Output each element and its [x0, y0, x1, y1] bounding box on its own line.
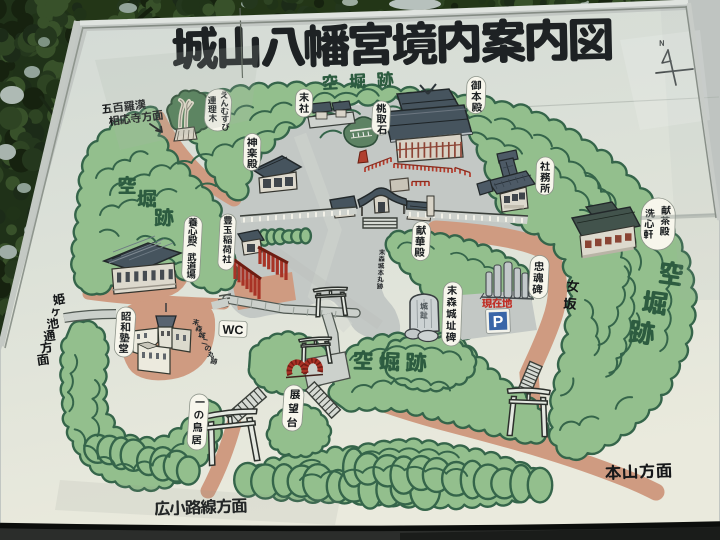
svg-text:WC: WC: [222, 323, 243, 338]
svg-text:P: P: [492, 314, 504, 331]
